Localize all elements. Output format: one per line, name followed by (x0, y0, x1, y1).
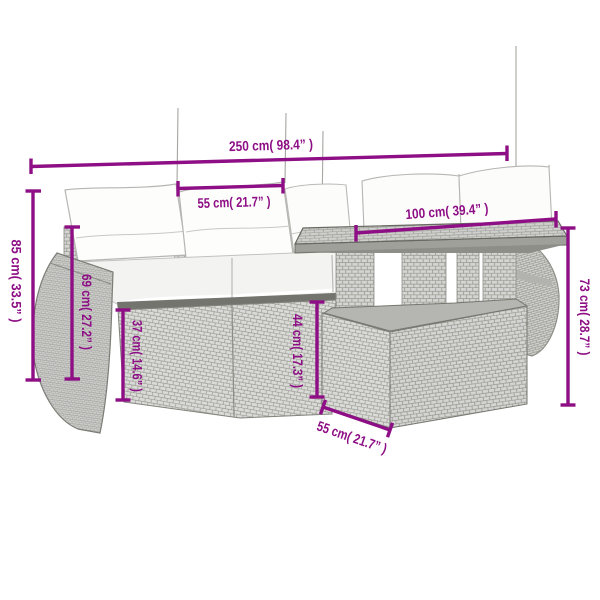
svg-text:44 cm( 17.3” ): 44 cm( 17.3” ) (290, 314, 306, 388)
svg-text:55 cm( 21.7” ): 55 cm( 21.7” ) (197, 193, 270, 211)
svg-text:250 cm( 98.4” ): 250 cm( 98.4” ) (229, 136, 313, 154)
svg-text:37 cm( 14.6” ): 37 cm( 14.6” ) (130, 320, 146, 392)
svg-text:69 cm( 27.2” ): 69 cm( 27.2” ) (79, 274, 95, 350)
svg-text:73 cm( 28.7” ): 73 cm( 28.7” ) (577, 279, 593, 356)
svg-text:85 cm( 33.5” ): 85 cm( 33.5” ) (9, 240, 25, 323)
